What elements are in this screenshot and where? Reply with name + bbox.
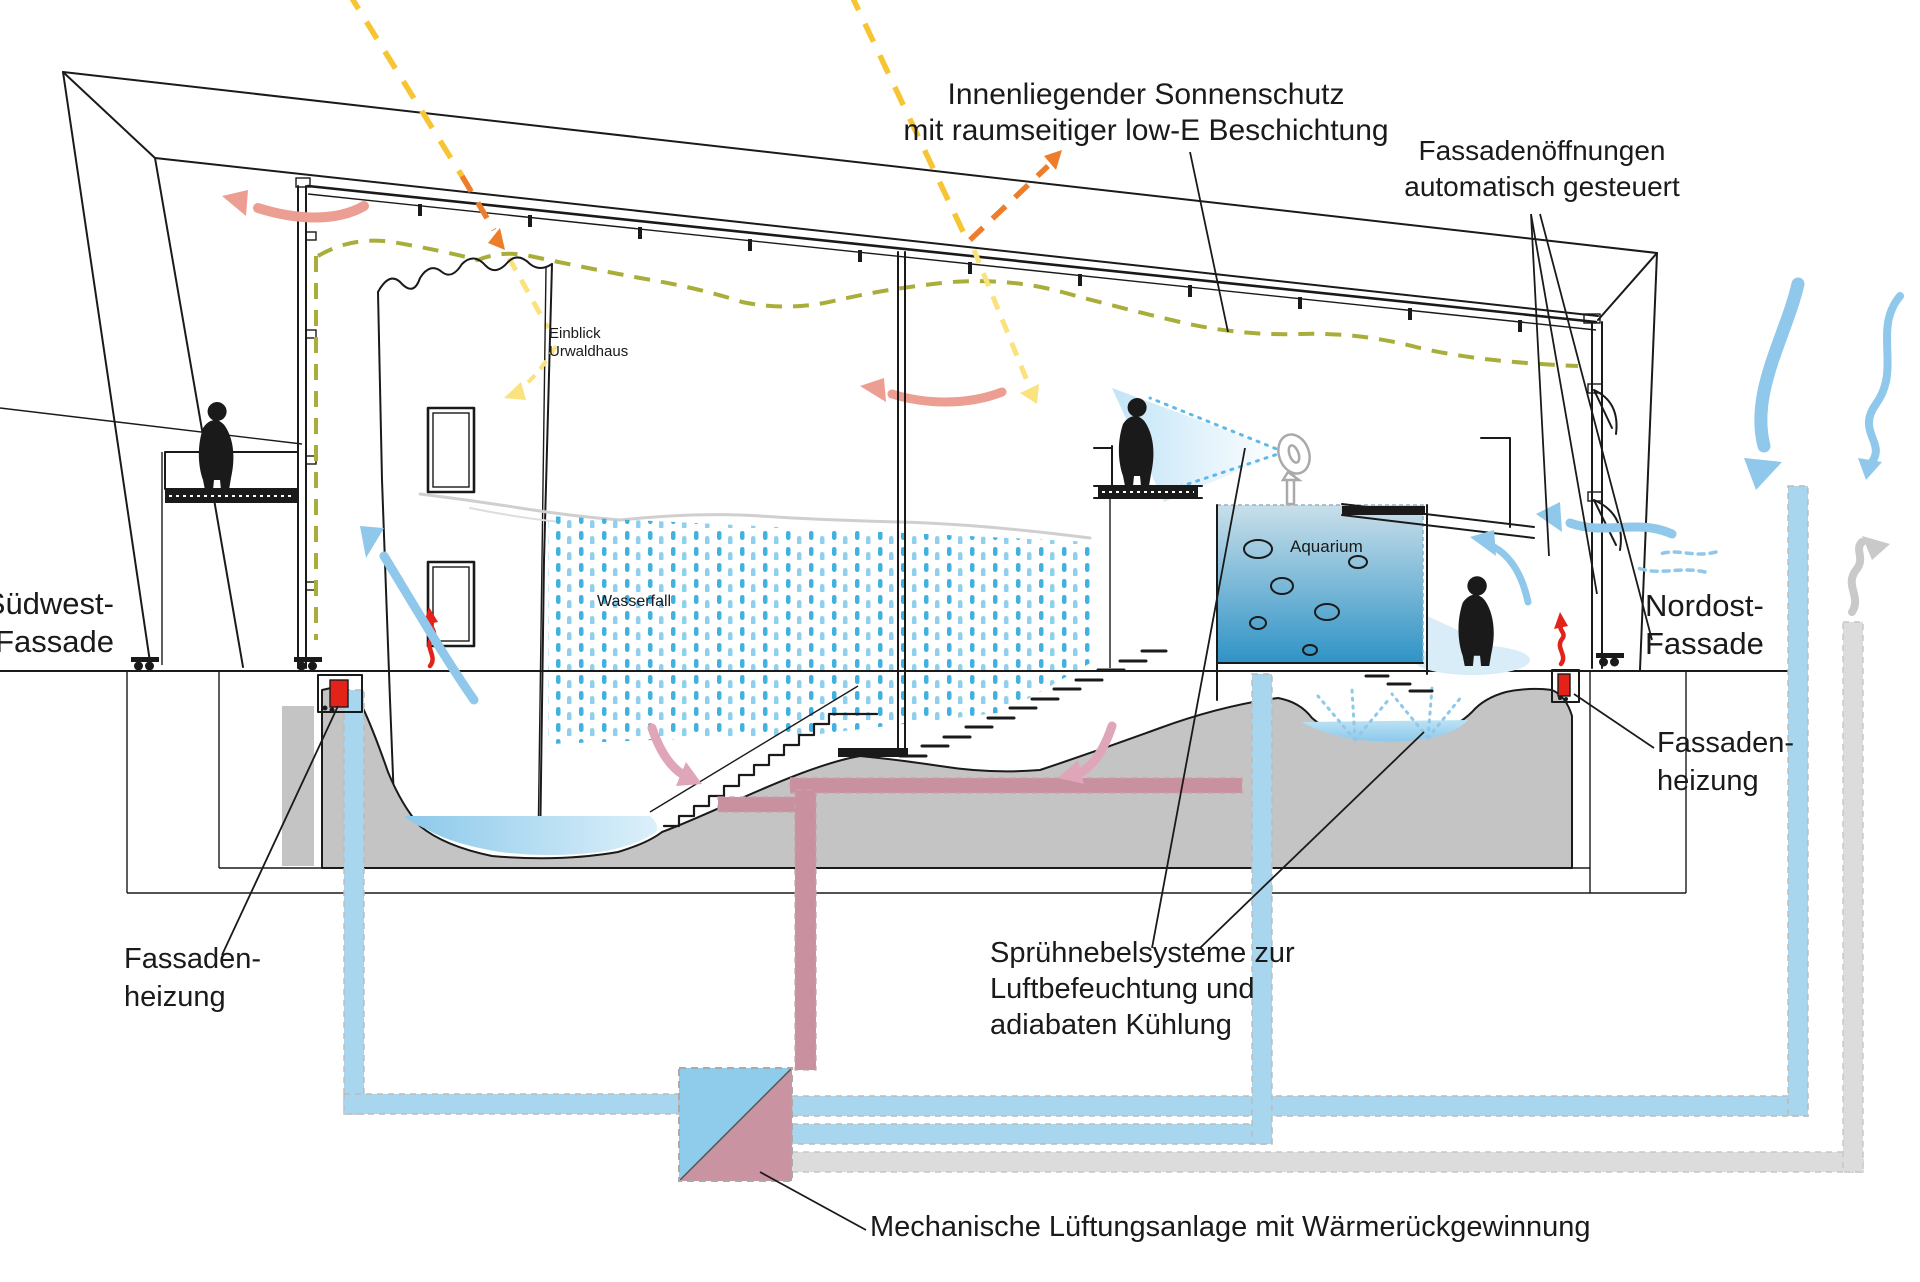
label-einblick-line2: Urwaldhaus bbox=[549, 343, 628, 360]
supply-pipe-left-horizontal bbox=[344, 1094, 679, 1114]
label-heizung-right-line2: heizung bbox=[1657, 765, 1759, 797]
heat-rise-squiggle-right-icon bbox=[1560, 625, 1564, 664]
tower-window-lower-frame bbox=[433, 567, 469, 641]
airflow-arrow-tower-head-icon bbox=[360, 526, 384, 558]
platform-grating bbox=[1098, 487, 1198, 497]
airflow-arrow-aquarium-head-icon bbox=[1470, 530, 1496, 556]
wind-ribbon-icon bbox=[1869, 296, 1900, 462]
label-heizung-left-line1: Fassaden- bbox=[124, 943, 261, 975]
sun-ray-2-transmitted bbox=[974, 250, 1030, 388]
exhaust-arrow-left-icon bbox=[258, 206, 364, 218]
walkway-grating bbox=[1342, 506, 1425, 515]
airflow-arrow-aquarium-icon bbox=[1494, 547, 1528, 602]
facade-inflow-head-icon bbox=[1536, 502, 1562, 532]
column-footing bbox=[838, 748, 908, 757]
pink-duct-vertical bbox=[795, 790, 816, 1070]
label-oeffnungen-line2: automatisch gesteuert bbox=[1404, 171, 1680, 202]
supply-pipe-left-vertical bbox=[344, 690, 364, 1114]
heater-right-element bbox=[1558, 674, 1570, 696]
intake-arrow-big-head-icon bbox=[1744, 458, 1782, 490]
exhaust-squiggle-head-icon bbox=[1862, 536, 1890, 560]
left-wall-fold bbox=[63, 72, 243, 667]
outside-airflow bbox=[1536, 284, 1900, 612]
left-facade-post bbox=[298, 186, 306, 668]
label-suedwest-line2: Fassade bbox=[0, 624, 114, 659]
heat-rise-right-head-icon bbox=[1554, 612, 1568, 629]
foundation-fill-left bbox=[282, 706, 314, 866]
leader-lueftungsanlage bbox=[760, 1172, 866, 1230]
intake-arrow-big-icon bbox=[1761, 284, 1798, 446]
label-lueftungsanlage: Mechanische Lüftungsanlage mit Wärmerück… bbox=[870, 1211, 1591, 1243]
sun-ray-2-pale-arrowhead-icon bbox=[1020, 384, 1039, 404]
sightline-head-icon bbox=[504, 382, 526, 400]
section-reference-line bbox=[0, 408, 302, 444]
label-heizung-right-line1: Fassaden- bbox=[1657, 727, 1794, 759]
walkway-railing bbox=[1481, 438, 1510, 527]
leader-heizung-left bbox=[222, 706, 338, 955]
label-sonnenschutz-line1: Innenliegender Sonnenschutz bbox=[948, 78, 1345, 111]
viewing-tower bbox=[378, 257, 552, 852]
leader-sonnenschutz bbox=[1190, 152, 1228, 332]
exhaust-squiggle-icon bbox=[1852, 542, 1862, 612]
tower-window-upper-frame bbox=[433, 413, 469, 487]
label-nordost-line1: Nordost- bbox=[1645, 588, 1764, 623]
label-oeffnungen-line1: Fassadenöffnungen bbox=[1418, 135, 1665, 166]
label-suedwest-line1: Südwest- bbox=[0, 586, 114, 621]
exhaust-pipe-horizontal bbox=[792, 1152, 1863, 1172]
label-sonnenschutz-line2: mit raumseitiger low-E Beschichtung bbox=[903, 114, 1388, 147]
waterfall-crest-line-2 bbox=[470, 508, 560, 522]
building-section-diagram: Innenliegender Sonnenschutz mit raumseit… bbox=[0, 0, 1920, 1282]
sun-ray-1-arrowhead-icon bbox=[488, 228, 505, 250]
waterfall bbox=[420, 494, 1092, 744]
bearing-icon-left-inner bbox=[294, 657, 322, 671]
glazing-line-lower bbox=[308, 194, 1596, 330]
bearing-icon-right bbox=[1596, 653, 1624, 667]
leader-heizung-right bbox=[1574, 694, 1654, 748]
heat-exchanger bbox=[679, 1068, 792, 1181]
wind-ribbon-head-icon bbox=[1858, 458, 1882, 480]
exhaust-arrow-center-icon bbox=[892, 392, 1002, 402]
label-wasserfall: Wasserfall bbox=[597, 593, 671, 610]
exhaust-arrow-center-head-icon bbox=[860, 378, 886, 402]
facade-inflow-trail-icon bbox=[1638, 552, 1716, 572]
bearing-icon-left-outer bbox=[131, 657, 159, 671]
left-wall-outer bbox=[63, 72, 150, 662]
window-flap-arc-upper bbox=[1594, 390, 1617, 434]
label-einblick-line1: Einblick bbox=[549, 325, 601, 342]
label-nebel-line1: Sprühnebelsysteme zur bbox=[990, 937, 1295, 969]
pink-duct-horizontal bbox=[790, 778, 1242, 793]
intake-pipe-horizontal bbox=[792, 1096, 1808, 1116]
platform-railing bbox=[1094, 446, 1112, 486]
tower-window-upper bbox=[428, 408, 474, 492]
supply-pipe-center-horizontal bbox=[792, 1124, 1272, 1144]
pink-duct-stub bbox=[718, 797, 798, 812]
right-facade-post bbox=[1592, 322, 1602, 668]
heater-left-element bbox=[330, 680, 348, 707]
tower-windows bbox=[428, 408, 474, 646]
exhaust-arrow-left-head-icon bbox=[222, 190, 248, 216]
label-heizung-left-line2: heizung bbox=[124, 981, 226, 1013]
exhaust-pipe-vertical bbox=[1843, 622, 1863, 1172]
diagram-root: Innenliegender Sonnenschutz mit raumseit… bbox=[0, 0, 1920, 1282]
mist-nozzle-icon bbox=[1273, 430, 1315, 504]
right-corner-diagonal bbox=[1598, 253, 1657, 320]
label-nebel-line3: adiabaten Kühlung bbox=[990, 1009, 1232, 1041]
label-aquarium: Aquarium bbox=[1290, 537, 1363, 556]
label-nordost-line2: Fassade bbox=[1645, 626, 1764, 661]
person-figure-aquarium bbox=[1458, 576, 1493, 666]
roof-exhaust-arrows bbox=[222, 190, 1002, 402]
sun-ray-1-incoming bbox=[348, 0, 462, 176]
aquarium-zone bbox=[1217, 438, 1534, 700]
glazing-line-upper bbox=[308, 186, 1596, 322]
aquarium-tank bbox=[1217, 505, 1423, 663]
label-nebel-line2: Luftbefeuchtung und bbox=[990, 973, 1254, 1005]
intake-pipe-vertical bbox=[1788, 486, 1808, 1116]
supply-pipe-center-vertical bbox=[1252, 674, 1272, 1144]
person-figure-balcony bbox=[199, 402, 234, 490]
steps-below-aquarium bbox=[1366, 676, 1432, 691]
